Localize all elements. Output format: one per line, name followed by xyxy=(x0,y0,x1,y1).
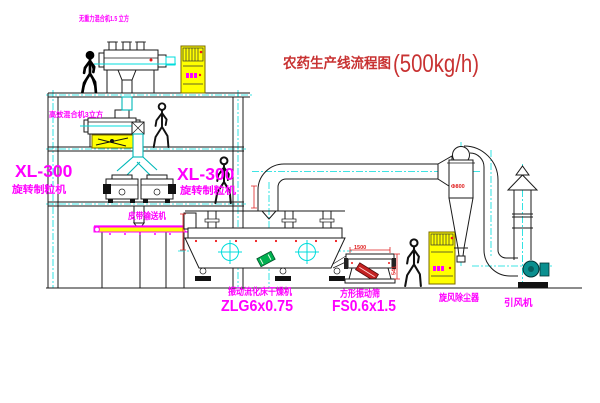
control-cabinet-ground xyxy=(429,232,455,284)
label-fan: 引风机 xyxy=(504,297,533,309)
belt-conveyor-machine xyxy=(94,226,190,288)
drawing-title: 农药生产线流程图 (500kg/h) xyxy=(282,50,479,78)
label-dryer-name: 振动流化床干燥机 xyxy=(228,286,292,298)
granulator-left-machine xyxy=(103,175,138,203)
cabinet-display xyxy=(433,266,444,271)
process-flow-diagram: 1500 541 Φ800 xyxy=(0,0,600,403)
label-dryer-model: ZLG6x0.75 xyxy=(221,298,293,315)
gravity-free-mixer xyxy=(94,42,176,93)
title-capacity: (500kg/h) xyxy=(393,50,479,78)
person-figure xyxy=(154,103,169,147)
label-granulator-right-model: XL-300 xyxy=(177,164,235,184)
title-chinese: 农药生产线流程图 xyxy=(282,55,391,71)
control-cabinet-top xyxy=(181,46,205,93)
label-high-efficiency-mixer: 高效混合机3立方 xyxy=(49,109,103,119)
person-figure xyxy=(405,239,421,286)
dryer-supports xyxy=(195,268,345,281)
dim-sieve-height: 541 xyxy=(392,266,398,275)
granulator-right-machine xyxy=(141,175,176,203)
dim-cyclone-diameter: Φ800 xyxy=(451,184,465,190)
label-granulator-left-name: 旋转制粒机 xyxy=(11,183,66,196)
label-gravity-mixer: 无重力混合机1.5 立方 xyxy=(78,13,129,23)
label-sieve-model: FS0.6x1.5 xyxy=(332,298,396,315)
dim-sieve-length: 1500 xyxy=(354,245,366,251)
cad-drawing-canvas: 1500 541 Φ800 xyxy=(0,0,600,403)
label-cyclone: 旋风除尘器 xyxy=(438,292,479,304)
label-belt-conveyor: 皮带输送机 xyxy=(127,210,166,221)
cabinet-display xyxy=(186,73,197,78)
label-granulator-left-model: XL-300 xyxy=(15,161,73,181)
label-granulator-right-name: 旋转制粒机 xyxy=(179,184,236,197)
person-figure xyxy=(82,52,95,92)
